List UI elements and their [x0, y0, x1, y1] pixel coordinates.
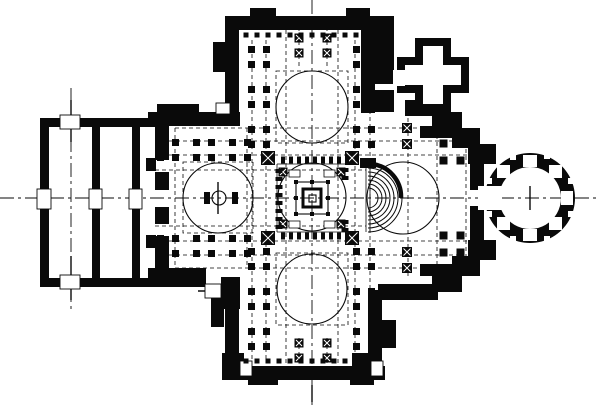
- door-openings-rect: [89, 189, 102, 209]
- pier-clusters-pier: [263, 141, 270, 148]
- walls-rect: [148, 268, 206, 287]
- pier-clusters-pier: [353, 263, 360, 270]
- pier-clusters-pier: [353, 343, 360, 350]
- white-openings-rect: [497, 217, 510, 230]
- door-openings-rect: [216, 103, 230, 114]
- white-openings-rect: [549, 165, 562, 178]
- pier-clusters-pier: [208, 154, 215, 161]
- walls-rect: [132, 208, 140, 278]
- pier-clusters-pier: [244, 154, 251, 161]
- walls-rect: [346, 8, 370, 17]
- pier-clusters-pier: [440, 249, 448, 257]
- ciborium-marks-square: [326, 196, 330, 200]
- white-openings-rect: [478, 186, 502, 210]
- white-openings-rect: [544, 236, 550, 242]
- ciborium-marks-square: [294, 212, 298, 216]
- colonnade-mark-rows-mark: [281, 233, 285, 240]
- walls-rect: [40, 278, 62, 287]
- white-openings-rect: [544, 153, 550, 159]
- pier-clusters-pier: [353, 126, 360, 133]
- pier-clusters-pier: [263, 101, 270, 108]
- pier-clusters-pier: [353, 303, 360, 310]
- white-openings-rect: [393, 70, 405, 86]
- pier-clusters-pier: [263, 248, 270, 255]
- pier-clusters-pier: [353, 86, 360, 93]
- pier-clusters-pier: [193, 139, 200, 146]
- pier-clusters-pier: [263, 328, 270, 335]
- white-openings-rect: [523, 229, 537, 241]
- colonnade-mark-rows-mark: [276, 209, 283, 213]
- colonnade-mark-rows-mark: [345, 233, 349, 240]
- pier-clusters-pier: [193, 235, 200, 242]
- colonnade-mark-rows-mark: [297, 233, 301, 240]
- colonnade-mark-rows-mark: [342, 176, 349, 180]
- colonnade-mark-rows-mark: [255, 359, 260, 364]
- pier-clusters-pier: [353, 141, 360, 148]
- white-openings-rect: [510, 236, 516, 242]
- floor-plan: [0, 0, 600, 405]
- colonnade-mark-rows-mark: [305, 233, 309, 240]
- pier-clusters-pier: [193, 250, 200, 257]
- colonnade-mark-rows-mark: [276, 217, 283, 221]
- pier-clusters-pier: [263, 288, 270, 295]
- colonnade-mark-rows-mark: [332, 33, 337, 38]
- pier-clusters-pier: [248, 46, 255, 53]
- walls-rect: [248, 376, 278, 385]
- colonnade-mark-rows-mark: [365, 359, 370, 364]
- pier-clusters-pier: [368, 263, 375, 270]
- ciborium-marks-square: [326, 212, 330, 216]
- ciborium-marks-square: [326, 180, 330, 184]
- pier-clusters-pier: [244, 139, 251, 146]
- chancel-boxes-rect: [324, 170, 335, 177]
- pier-clusters-pier: [368, 303, 375, 310]
- pier-clusters-pier: [229, 235, 236, 242]
- pier-clusters-pier: [157, 154, 164, 161]
- pier-clusters-pier: [368, 328, 375, 335]
- colonnade-mark-rows-mark: [277, 359, 282, 364]
- pier-clusters-pier: [248, 101, 255, 108]
- pier-clusters-pier: [263, 126, 270, 133]
- pier-clusters-pier: [368, 86, 375, 93]
- colonnade-mark-rows-mark: [313, 157, 317, 164]
- colonnade-mark-rows-mark: [342, 228, 349, 232]
- colonnade-mark-rows-mark: [321, 233, 325, 240]
- pier-clusters-pier: [263, 61, 270, 68]
- walls-rect: [40, 208, 49, 287]
- pier-clusters-pier: [263, 343, 270, 350]
- walls-rect: [146, 158, 156, 171]
- colonnade-mark-rows-mark: [276, 225, 283, 229]
- pier-clusters-pier: [368, 343, 375, 350]
- chancel-boxes-rect: [289, 170, 300, 177]
- colonnade-mark-rows-mark: [276, 177, 283, 181]
- colonnade-mark-rows-mark: [313, 233, 317, 240]
- pier-clusters-pier: [353, 46, 360, 53]
- walls-rect: [470, 152, 484, 190]
- ciborium-marks-square: [294, 180, 298, 184]
- colonnade-mark-rows-mark: [244, 33, 249, 38]
- pier-clusters-pier: [440, 157, 448, 165]
- colonnade-mark-rows-mark: [281, 157, 285, 164]
- walls-rect: [420, 126, 454, 138]
- pier-clusters-pier: [263, 86, 270, 93]
- colonnade-mark-rows-mark: [276, 193, 283, 197]
- walls-rect: [213, 42, 226, 72]
- colonnade-mark-rows-mark: [343, 33, 348, 38]
- pier-clusters-pier: [157, 250, 164, 257]
- pier-clusters-pier: [368, 101, 375, 108]
- pier-clusters-pier: [368, 141, 375, 148]
- walls-rect: [372, 16, 394, 84]
- door-openings-rect: [60, 275, 80, 289]
- white-openings-rect: [561, 191, 573, 205]
- pier-clusters-pier: [229, 139, 236, 146]
- pier-clusters-pier: [172, 250, 179, 257]
- walls-rect: [92, 127, 100, 191]
- colonnade-mark-rows-mark: [345, 157, 349, 164]
- walls-rect: [398, 284, 438, 300]
- colonnade-mark-rows-mark: [310, 359, 315, 364]
- colonnade-mark-rows-mark: [365, 33, 370, 38]
- floor-plan-drawing: [0, 0, 600, 405]
- ciborium-outline-outline: [309, 195, 316, 202]
- walls-rect: [470, 206, 484, 244]
- door-openings-rect: [60, 115, 80, 129]
- walls-rect: [211, 297, 224, 327]
- pier-clusters-pier: [368, 126, 375, 133]
- pier-clusters-pier: [457, 232, 465, 240]
- colonnade-mark-rows-mark: [276, 169, 283, 173]
- ciborium-marks-square: [310, 212, 314, 216]
- white-openings-rect: [497, 165, 510, 178]
- colonnade-mark-rows-mark: [277, 33, 282, 38]
- pier-clusters-pier: [368, 46, 375, 53]
- pier-clusters-pier: [368, 61, 375, 68]
- white-openings-rect: [568, 211, 574, 217]
- pier-clusters-pier: [353, 61, 360, 68]
- pier-clusters-pier: [208, 250, 215, 257]
- pier-clusters-pier: [244, 235, 251, 242]
- colonnade-mark-rows-mark: [276, 201, 283, 205]
- pier-clusters-pier: [248, 263, 255, 270]
- walls-rect: [155, 207, 169, 224]
- pier-clusters-pier: [263, 46, 270, 53]
- ciborium-marks-square: [294, 196, 298, 200]
- colonnade-mark-rows-mark: [321, 359, 326, 364]
- walls-rect: [155, 172, 169, 190]
- pier-clusters-pier: [157, 139, 164, 146]
- colonnade-mark-rows-mark: [288, 359, 293, 364]
- pier-clusters-pier: [248, 343, 255, 350]
- door-openings-rect: [371, 361, 383, 376]
- walls-rect: [92, 208, 100, 278]
- pier-clusters-pier: [248, 248, 255, 255]
- pier-clusters-pier: [457, 157, 465, 165]
- walls-rect: [378, 284, 402, 300]
- colonnade-mark-rows-mark: [266, 359, 271, 364]
- pier-clusters-pier: [248, 303, 255, 310]
- pier-clusters-pier: [208, 235, 215, 242]
- pier-clusters-pier: [263, 303, 270, 310]
- pier-clusters-pier: [193, 154, 200, 161]
- pier-clusters-pier: [248, 328, 255, 335]
- pier-clusters-pier: [368, 288, 375, 295]
- white-openings-rect: [549, 217, 562, 230]
- colonnade-mark-rows-mark: [354, 359, 359, 364]
- colonnade-mark-rows-mark: [289, 157, 293, 164]
- chancel-boxes-rect: [289, 221, 300, 228]
- walls-rect: [80, 118, 158, 127]
- pier-clusters-pier: [229, 250, 236, 257]
- colonnade-mark-rows-mark: [288, 33, 293, 38]
- pier-clusters-pier: [440, 140, 448, 148]
- colonnade-mark-rows-mark: [337, 157, 341, 164]
- pier-clusters-pier: [457, 140, 465, 148]
- walls-rect: [157, 104, 199, 114]
- colonnade-mark-rows-mark: [321, 157, 325, 164]
- walls-rect: [40, 118, 49, 191]
- walls-rect: [382, 320, 396, 348]
- pier-clusters-pier: [248, 126, 255, 133]
- colonnade-mark-rows-mark: [337, 233, 341, 240]
- pier-clusters-pier: [457, 249, 465, 257]
- pier-clusters-pier: [353, 288, 360, 295]
- walls-rect: [372, 90, 394, 112]
- walls-rect: [132, 127, 140, 191]
- pier-clusters-pier: [172, 154, 179, 161]
- colonnade-mark-rows-mark: [332, 359, 337, 364]
- door-openings-rect: [129, 189, 142, 209]
- pier-clusters-pier: [172, 235, 179, 242]
- colonnade-mark-rows-mark: [342, 168, 349, 172]
- colonnade-mark-rows-mark: [354, 33, 359, 38]
- walls-rect: [420, 264, 454, 276]
- pier-clusters-pier: [353, 101, 360, 108]
- colonnade-mark-rows-mark: [244, 359, 249, 364]
- chancel-boxes-rect: [324, 221, 335, 228]
- colonnade-mark-rows-mark: [310, 33, 315, 38]
- pier-clusters-pier: [157, 235, 164, 242]
- pier-clusters-pier: [248, 61, 255, 68]
- pier-clusters-pier: [263, 263, 270, 270]
- white-openings-rect: [510, 154, 516, 160]
- door-openings-rect: [205, 284, 221, 298]
- white-openings-rect: [486, 211, 492, 217]
- ciborium-marks-square: [310, 180, 314, 184]
- white-openings-rect: [486, 178, 492, 184]
- pier-clusters-pier: [172, 139, 179, 146]
- colonnade-mark-rows-mark: [343, 359, 348, 364]
- pier-clusters-pier: [368, 248, 375, 255]
- walls-rect: [204, 192, 210, 204]
- colonnade-mark-rows-mark: [289, 233, 293, 240]
- walls-rect: [146, 235, 156, 248]
- white-openings-rect: [523, 155, 537, 167]
- colonnade-mark-rows-mark: [266, 33, 271, 38]
- colonnade-mark-rows-mark: [321, 33, 326, 38]
- pier-clusters-pier: [353, 248, 360, 255]
- colonnade-mark-rows-mark: [255, 33, 260, 38]
- pier-clusters-pier: [248, 86, 255, 93]
- pier-clusters-pier: [229, 154, 236, 161]
- colonnade-mark-rows-mark: [299, 359, 304, 364]
- colonnade-mark-rows-mark: [329, 157, 333, 164]
- white-openings-rect: [423, 46, 443, 104]
- colonnade-mark-rows-mark: [276, 185, 283, 189]
- colonnade-mark-rows-mark: [305, 157, 309, 164]
- walls-rect: [225, 16, 239, 113]
- door-openings-rect: [37, 189, 51, 209]
- pier-clusters-pier: [440, 232, 448, 240]
- pier-clusters-pier: [248, 288, 255, 295]
- colonnade-mark-rows-mark: [342, 220, 349, 224]
- colonnade-mark-rows-mark: [329, 233, 333, 240]
- walls-rect: [40, 118, 62, 127]
- pier-clusters-pier: [208, 139, 215, 146]
- pier-clusters-pier: [353, 328, 360, 335]
- walls-rect: [250, 8, 276, 17]
- white-openings-rect: [568, 178, 574, 184]
- colonnade-mark-rows-mark: [299, 33, 304, 38]
- walls-rect: [232, 192, 238, 204]
- colonnade-mark-rows-mark: [297, 157, 301, 164]
- walls-rect: [225, 16, 375, 30]
